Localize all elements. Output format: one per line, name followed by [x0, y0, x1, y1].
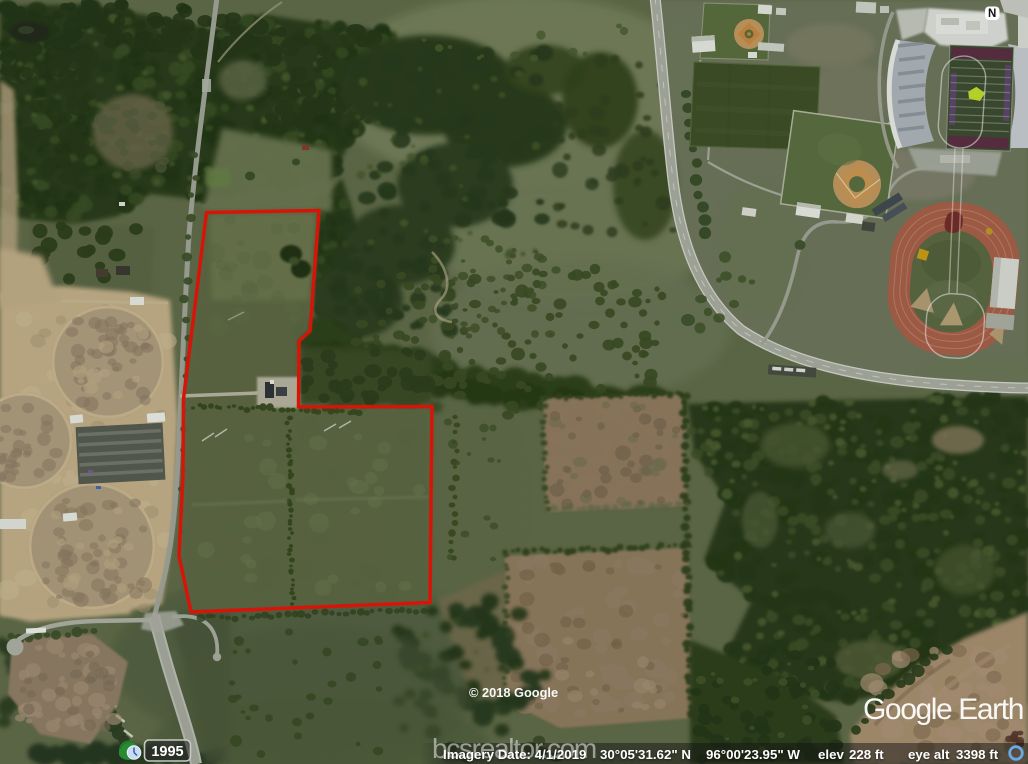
svg-text:228 ft: 228 ft — [849, 747, 884, 762]
svg-text:1995: 1995 — [151, 744, 183, 760]
svg-text:30°05'31.62" N: 30°05'31.62" N — [600, 747, 691, 762]
svg-text:96°00'23.95" W: 96°00'23.95" W — [706, 747, 800, 762]
svg-text:eye alt: eye alt — [908, 747, 950, 762]
svg-text:© 2018 Google: © 2018 Google — [469, 685, 558, 700]
svg-text:elev: elev — [818, 747, 844, 762]
svg-text:Google Earth: Google Earth — [863, 693, 1023, 726]
svg-text:N: N — [988, 8, 996, 20]
svg-text:3398 ft: 3398 ft — [956, 747, 999, 762]
svg-text:Imagery Date: 4/1/2019: Imagery Date: 4/1/2019 — [443, 747, 586, 762]
